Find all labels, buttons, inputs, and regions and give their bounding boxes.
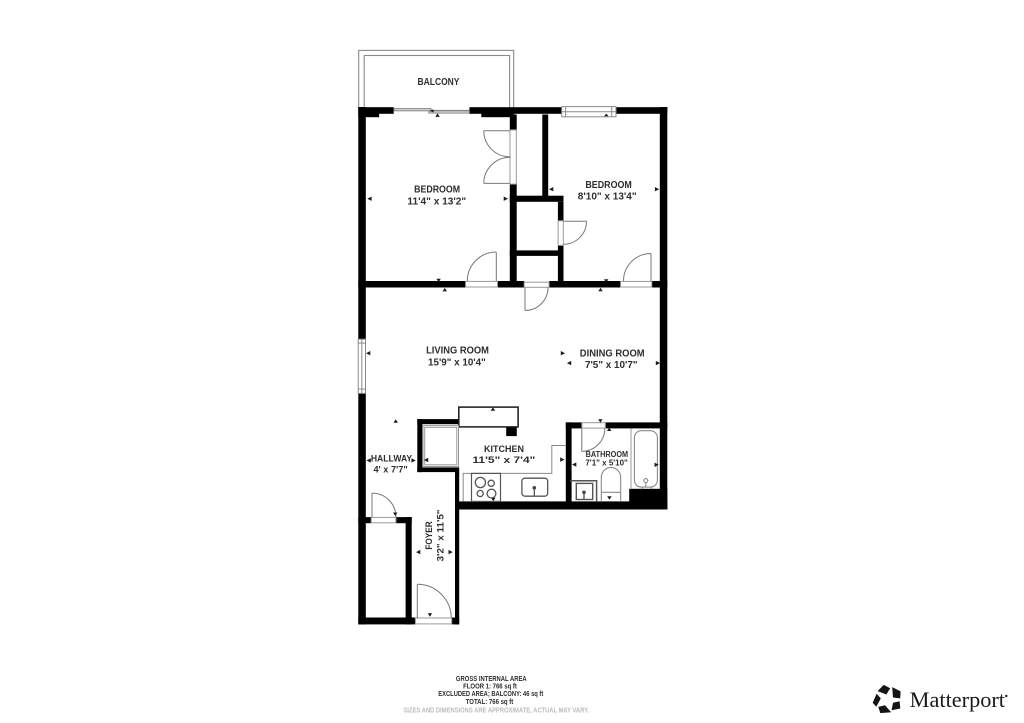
svg-text:7'1" x 5'10": 7'1" x 5'10" [585, 459, 628, 468]
svg-text:EXCLUDED AREA; BALCONY: 46 sq: EXCLUDED AREA; BALCONY: 46 sq ft [438, 691, 544, 698]
svg-text:GROSS INTERNAL AREA: GROSS INTERNAL AREA [456, 676, 527, 683]
svg-text:7'5" x 10'7": 7'5" x 10'7" [585, 360, 638, 371]
svg-text:FOYER: FOYER [424, 521, 435, 549]
svg-text:BEDROOM: BEDROOM [414, 185, 460, 196]
svg-text:11'4" x 13'2": 11'4" x 13'2" [407, 196, 466, 207]
svg-text:FLOOR 1: 766 sq ft: FLOOR 1: 766 sq ft [463, 683, 517, 690]
svg-text:DINING ROOM: DINING ROOM [580, 349, 645, 360]
svg-text:TOTAL: 766 sq ft: TOTAL: 766 sq ft [466, 699, 514, 706]
svg-text:4' x 7'7": 4' x 7'7" [373, 464, 407, 475]
svg-text:Matterport: Matterport [910, 687, 1005, 712]
svg-text:8'10" x 13'4": 8'10" x 13'4" [578, 192, 637, 203]
svg-text:LIVING ROOM: LIVING ROOM [426, 346, 489, 357]
svg-text:SIZES AND DIMENSIONS ARE APPRO: SIZES AND DIMENSIONS ARE APPROXIMATE, AC… [403, 708, 589, 715]
svg-text:HALLWAY: HALLWAY [371, 454, 413, 465]
svg-text:KITCHEN: KITCHEN [484, 444, 524, 455]
svg-text:3'2" x 11'5": 3'2" x 11'5" [435, 510, 446, 562]
svg-text:BEDROOM: BEDROOM [585, 180, 632, 191]
svg-text:15'9" x 10'4": 15'9" x 10'4" [428, 358, 486, 369]
svg-text:11'5" x 7'4": 11'5" x 7'4" [472, 455, 535, 466]
svg-text:BALCONY: BALCONY [418, 77, 460, 88]
